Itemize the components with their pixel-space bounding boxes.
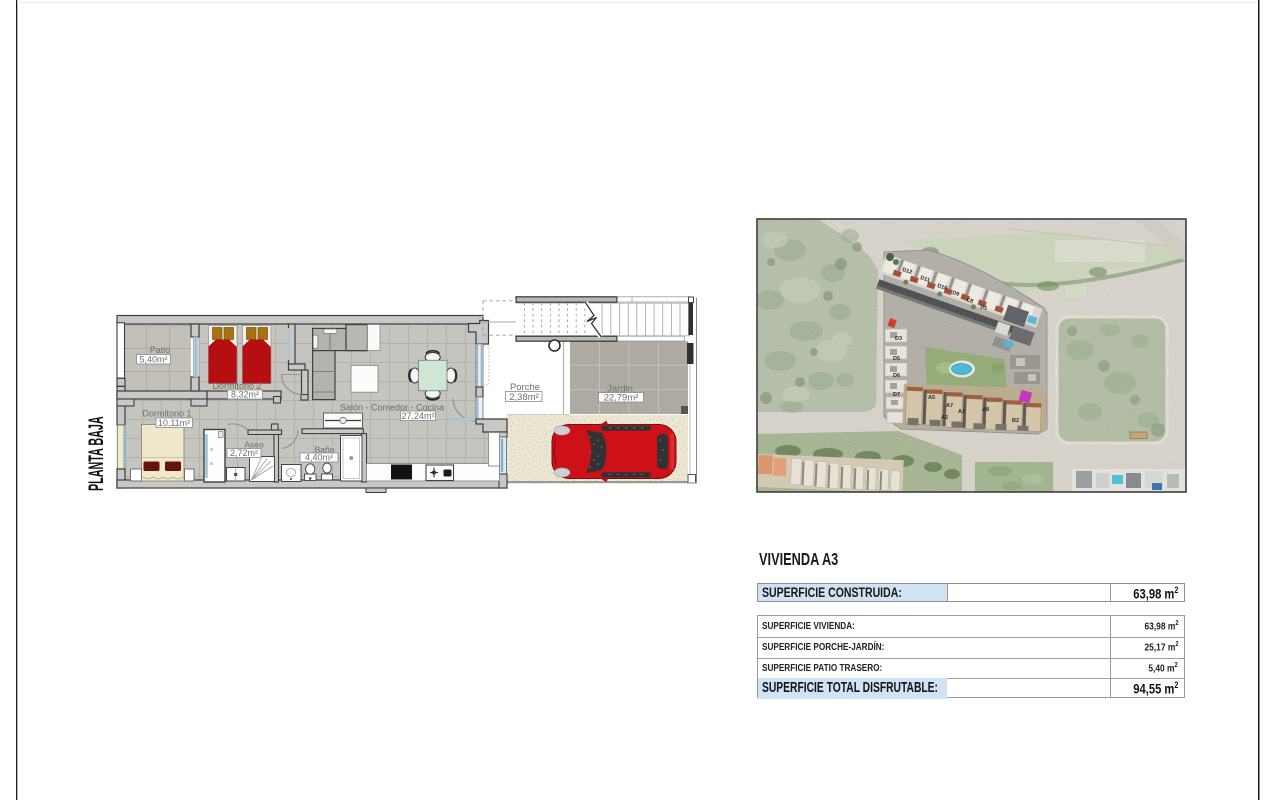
svg-text:27,24m²: 27,24m² xyxy=(401,411,434,421)
svg-text:10,11m²: 10,11m² xyxy=(158,418,190,428)
svg-text:5,40m²: 5,40m² xyxy=(139,354,167,364)
svg-text:2,72m²: 2,72m² xyxy=(230,448,258,458)
svg-text:22,79m²: 22,79m² xyxy=(604,393,639,404)
svg-text:4,40m²: 4,40m² xyxy=(305,453,333,463)
svg-text:8,32m²: 8,32m² xyxy=(231,390,259,400)
svg-text:2,38m²: 2,38m² xyxy=(509,392,539,403)
svg-text:PLANTA BAJA: PLANTA BAJA xyxy=(84,416,108,491)
svg-text:Dormitorio 1: Dormitorio 1 xyxy=(142,409,191,419)
